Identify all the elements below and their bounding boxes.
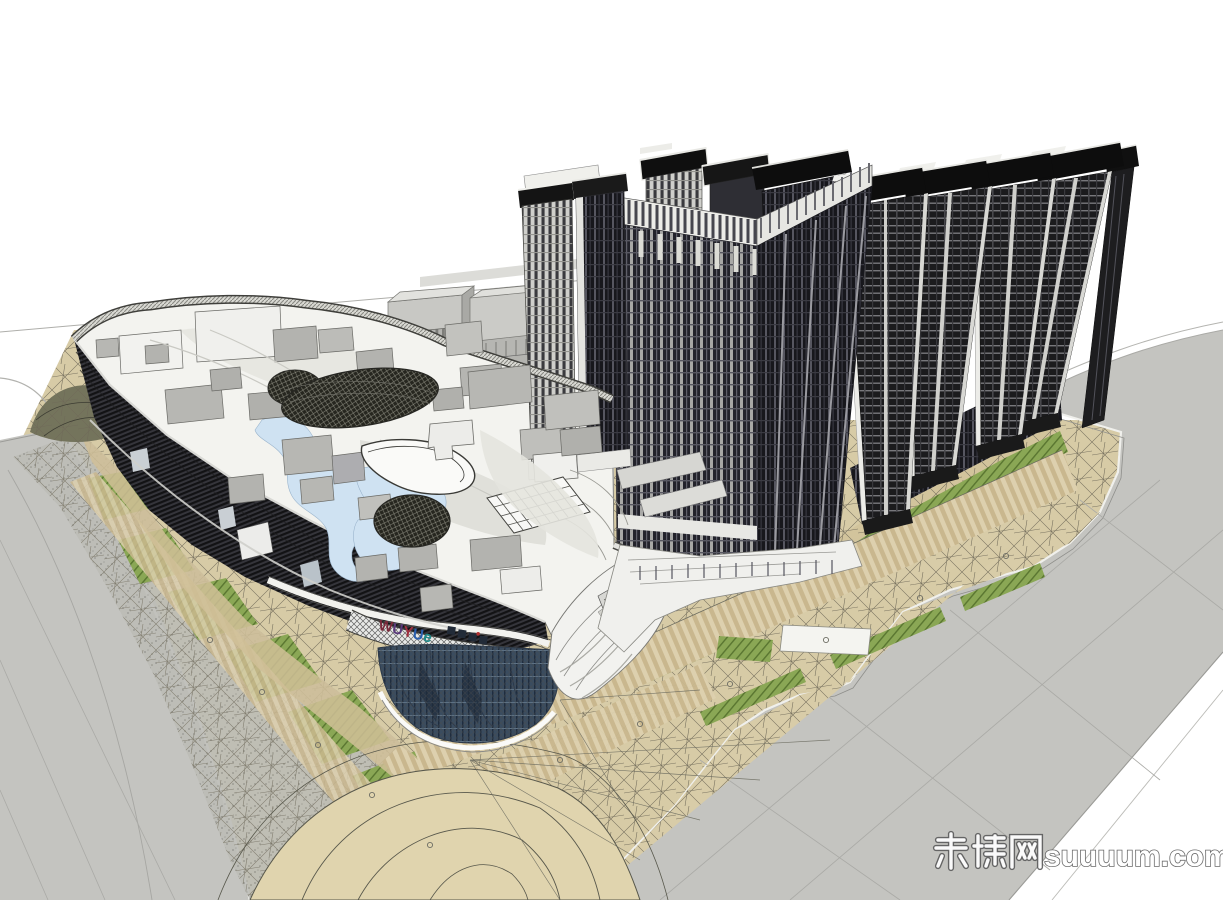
svg-text:suuuum.com: suuuum.com (1044, 840, 1223, 873)
